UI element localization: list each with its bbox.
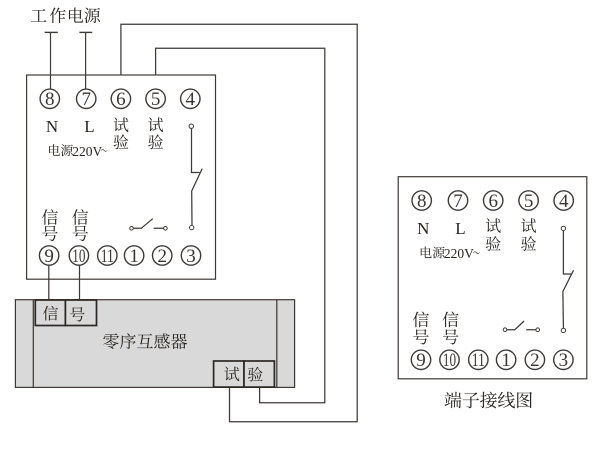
- svg-text:L: L: [84, 117, 94, 136]
- svg-text:N: N: [46, 117, 58, 136]
- svg-text:2: 2: [157, 246, 167, 267]
- svg-text:7: 7: [81, 89, 91, 110]
- svg-text:8: 8: [417, 191, 427, 212]
- svg-text:N: N: [417, 219, 429, 238]
- svg-text:220V: 220V: [72, 144, 102, 159]
- svg-text:L: L: [455, 219, 465, 238]
- svg-text:6: 6: [116, 89, 126, 110]
- svg-text:5: 5: [524, 191, 534, 212]
- svg-text:11: 11: [472, 350, 485, 371]
- svg-text:3: 3: [559, 350, 569, 371]
- svg-text:4: 4: [559, 191, 569, 212]
- svg-text:8: 8: [45, 89, 55, 110]
- svg-text:1: 1: [501, 350, 511, 371]
- svg-text:7: 7: [453, 191, 463, 212]
- svg-text:5: 5: [151, 89, 161, 110]
- svg-text:11: 11: [101, 246, 114, 267]
- svg-text:6: 6: [488, 191, 498, 212]
- svg-text:9: 9: [44, 246, 54, 267]
- svg-text:1: 1: [129, 246, 139, 267]
- svg-text:4: 4: [186, 89, 196, 110]
- svg-text:10: 10: [443, 350, 456, 371]
- svg-text:10: 10: [72, 246, 85, 267]
- svg-text:2: 2: [530, 350, 540, 371]
- svg-text:9: 9: [416, 350, 426, 371]
- svg-text:220V: 220V: [444, 246, 474, 261]
- svg-text:3: 3: [186, 246, 196, 267]
